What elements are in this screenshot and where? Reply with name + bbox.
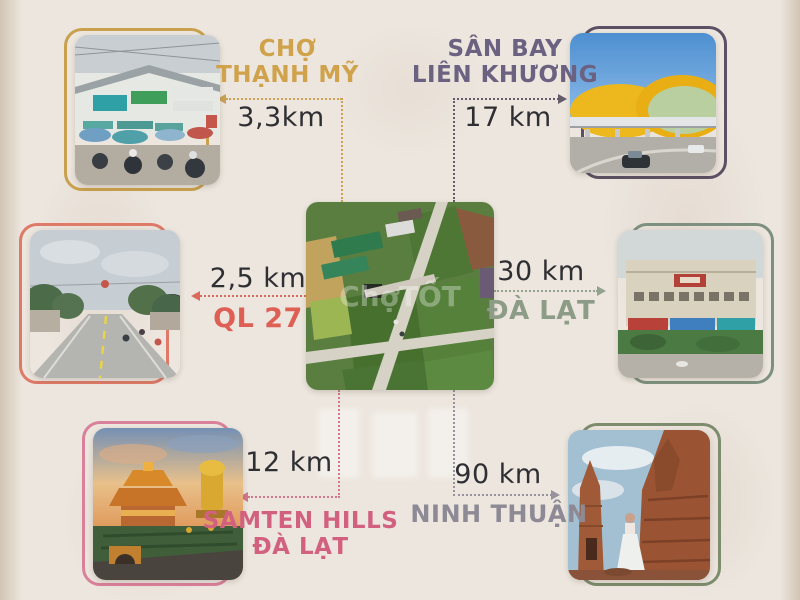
distance-cho-thanh-my: 3,3km — [226, 102, 336, 133]
connector-market-horizontal — [226, 98, 342, 100]
location-title-cho-thanh-my: CHỢ THẠNH MỸ — [210, 36, 365, 88]
connector-market-vertical — [341, 98, 343, 202]
aerial-land-plot-photo: ChợTỐT — [306, 202, 494, 390]
photo-street-market — [75, 35, 220, 185]
location-title-da-lat: ĐÀ LẠT — [482, 297, 600, 327]
distance-da-lat: 30 km — [486, 256, 596, 287]
arrow-left-icon — [191, 291, 200, 301]
connector-ql27-horizontal — [200, 295, 306, 297]
location-title-san-bay-lien-khuong: SÂN BAY LIÊN KHƯƠNG — [410, 36, 600, 88]
distance-ql-27: 2,5 km — [203, 263, 313, 294]
infographic-canvas: ChợTỐT — [0, 0, 800, 600]
location-title-samten-hills: SAMTEN HILLS ĐÀ LẠT — [198, 508, 403, 560]
arrow-right-icon — [551, 490, 560, 500]
connector-samten-horizontal — [248, 496, 340, 498]
distance-samten-hills: 12 km — [234, 447, 344, 478]
location-title-ql-27: QL 27 — [203, 304, 313, 335]
distance-san-bay-lien-khuong: 17 km — [453, 102, 563, 133]
connector-airport-horizontal — [453, 98, 559, 100]
location-title-ninh-thuan: NINH THUẬN — [400, 501, 598, 528]
watermark-text: ChợTỐT — [339, 275, 461, 313]
arrow-right-icon — [597, 286, 606, 296]
distance-ninh-thuan: 90 km — [443, 459, 553, 490]
photo-dalat-market-building — [618, 230, 763, 378]
connector-dalat-horizontal — [494, 290, 598, 292]
photo-highway-road — [30, 230, 180, 378]
background-ghost-shape — [372, 412, 418, 478]
background-tree-strip-right — [780, 0, 800, 600]
connector-ninhthuan-horizontal — [453, 494, 552, 496]
connector-samten-vertical — [338, 390, 340, 498]
